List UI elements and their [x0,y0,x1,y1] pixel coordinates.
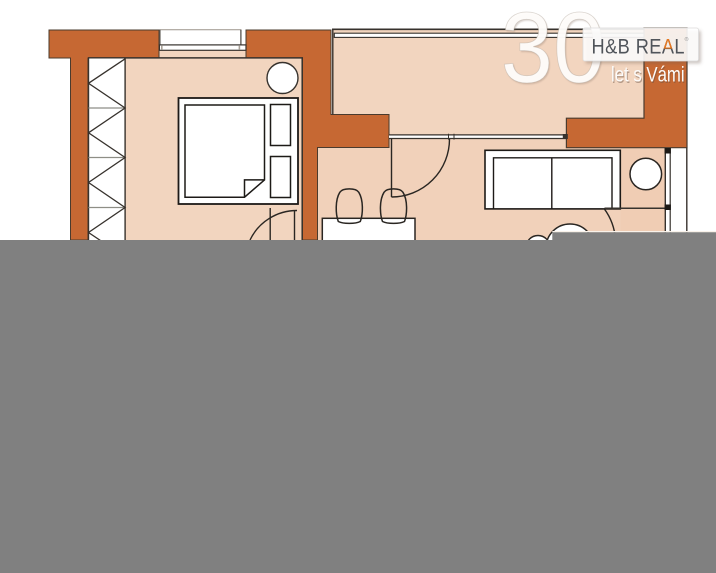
svg-text:let s Vámi: let s Vámi [611,64,685,87]
svg-text:®: ® [685,36,689,43]
